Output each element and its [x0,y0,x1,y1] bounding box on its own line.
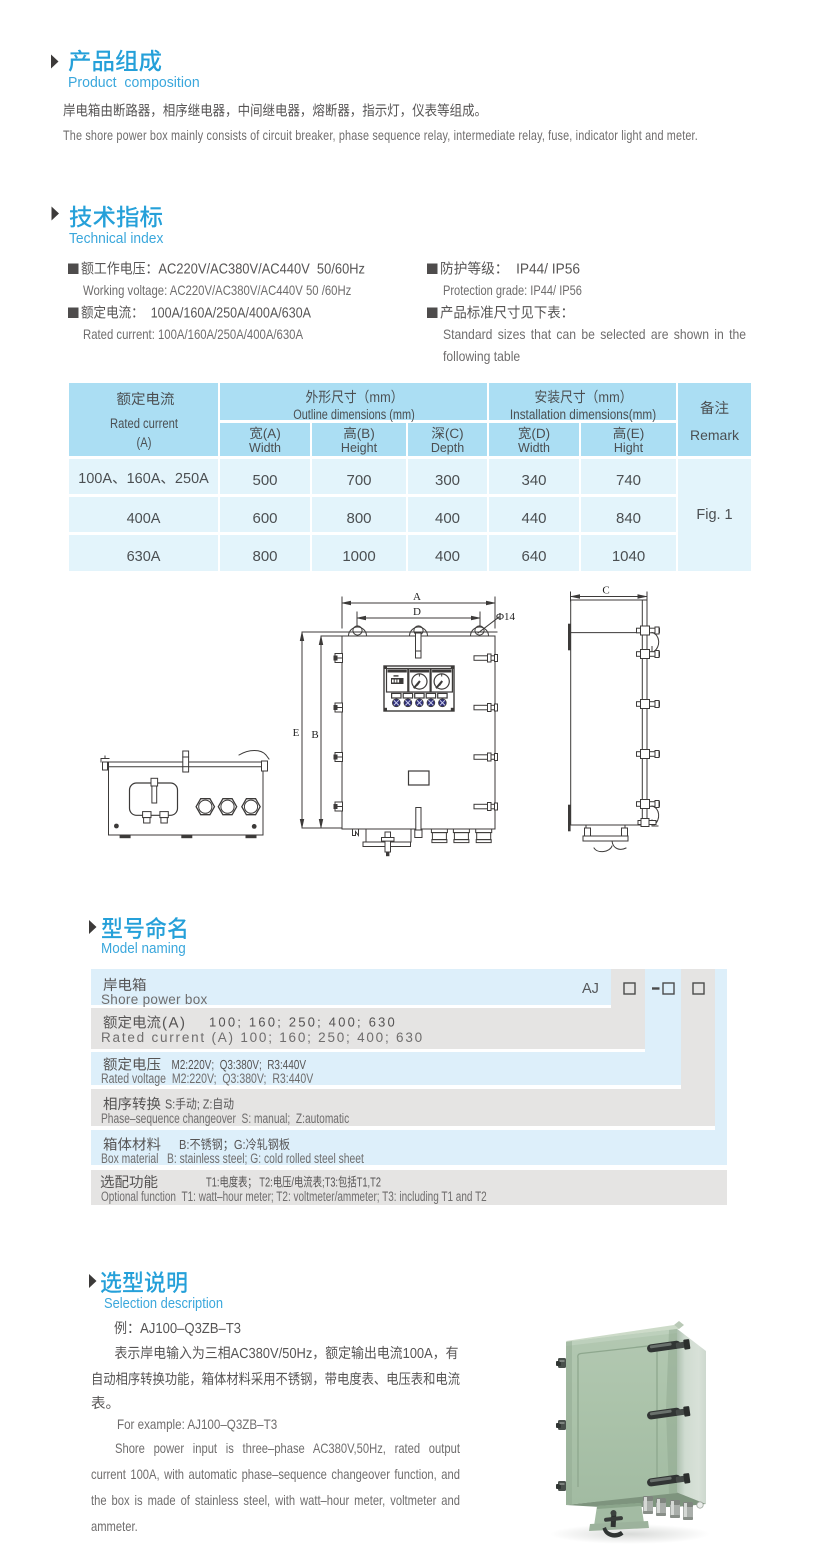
svg-text:E: E [293,727,300,739]
svg-text:Φ14: Φ14 [496,611,516,623]
svg-text:D: D [413,606,421,618]
svg-text:C: C [602,585,609,597]
svg-text:B: B [311,729,318,741]
svg-text:A: A [413,591,421,603]
